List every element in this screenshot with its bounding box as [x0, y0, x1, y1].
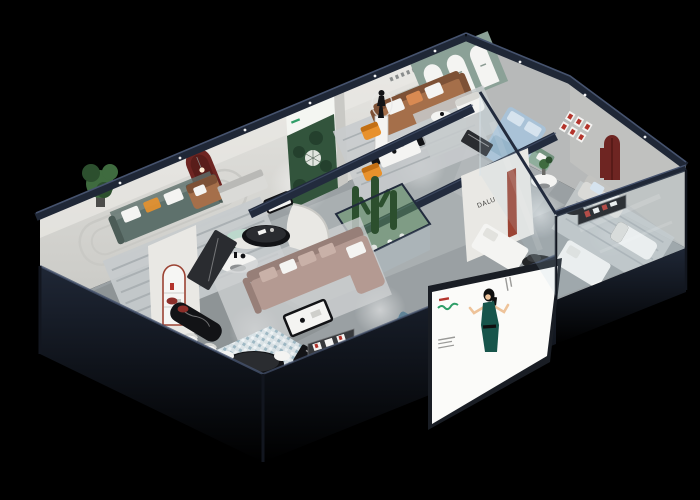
- scene-canvas: DALU: [0, 0, 700, 500]
- black-oval-coffee-table: [242, 225, 290, 247]
- showroom-isometric-render: DALU: [0, 0, 700, 500]
- maroon-column: [600, 148, 609, 178]
